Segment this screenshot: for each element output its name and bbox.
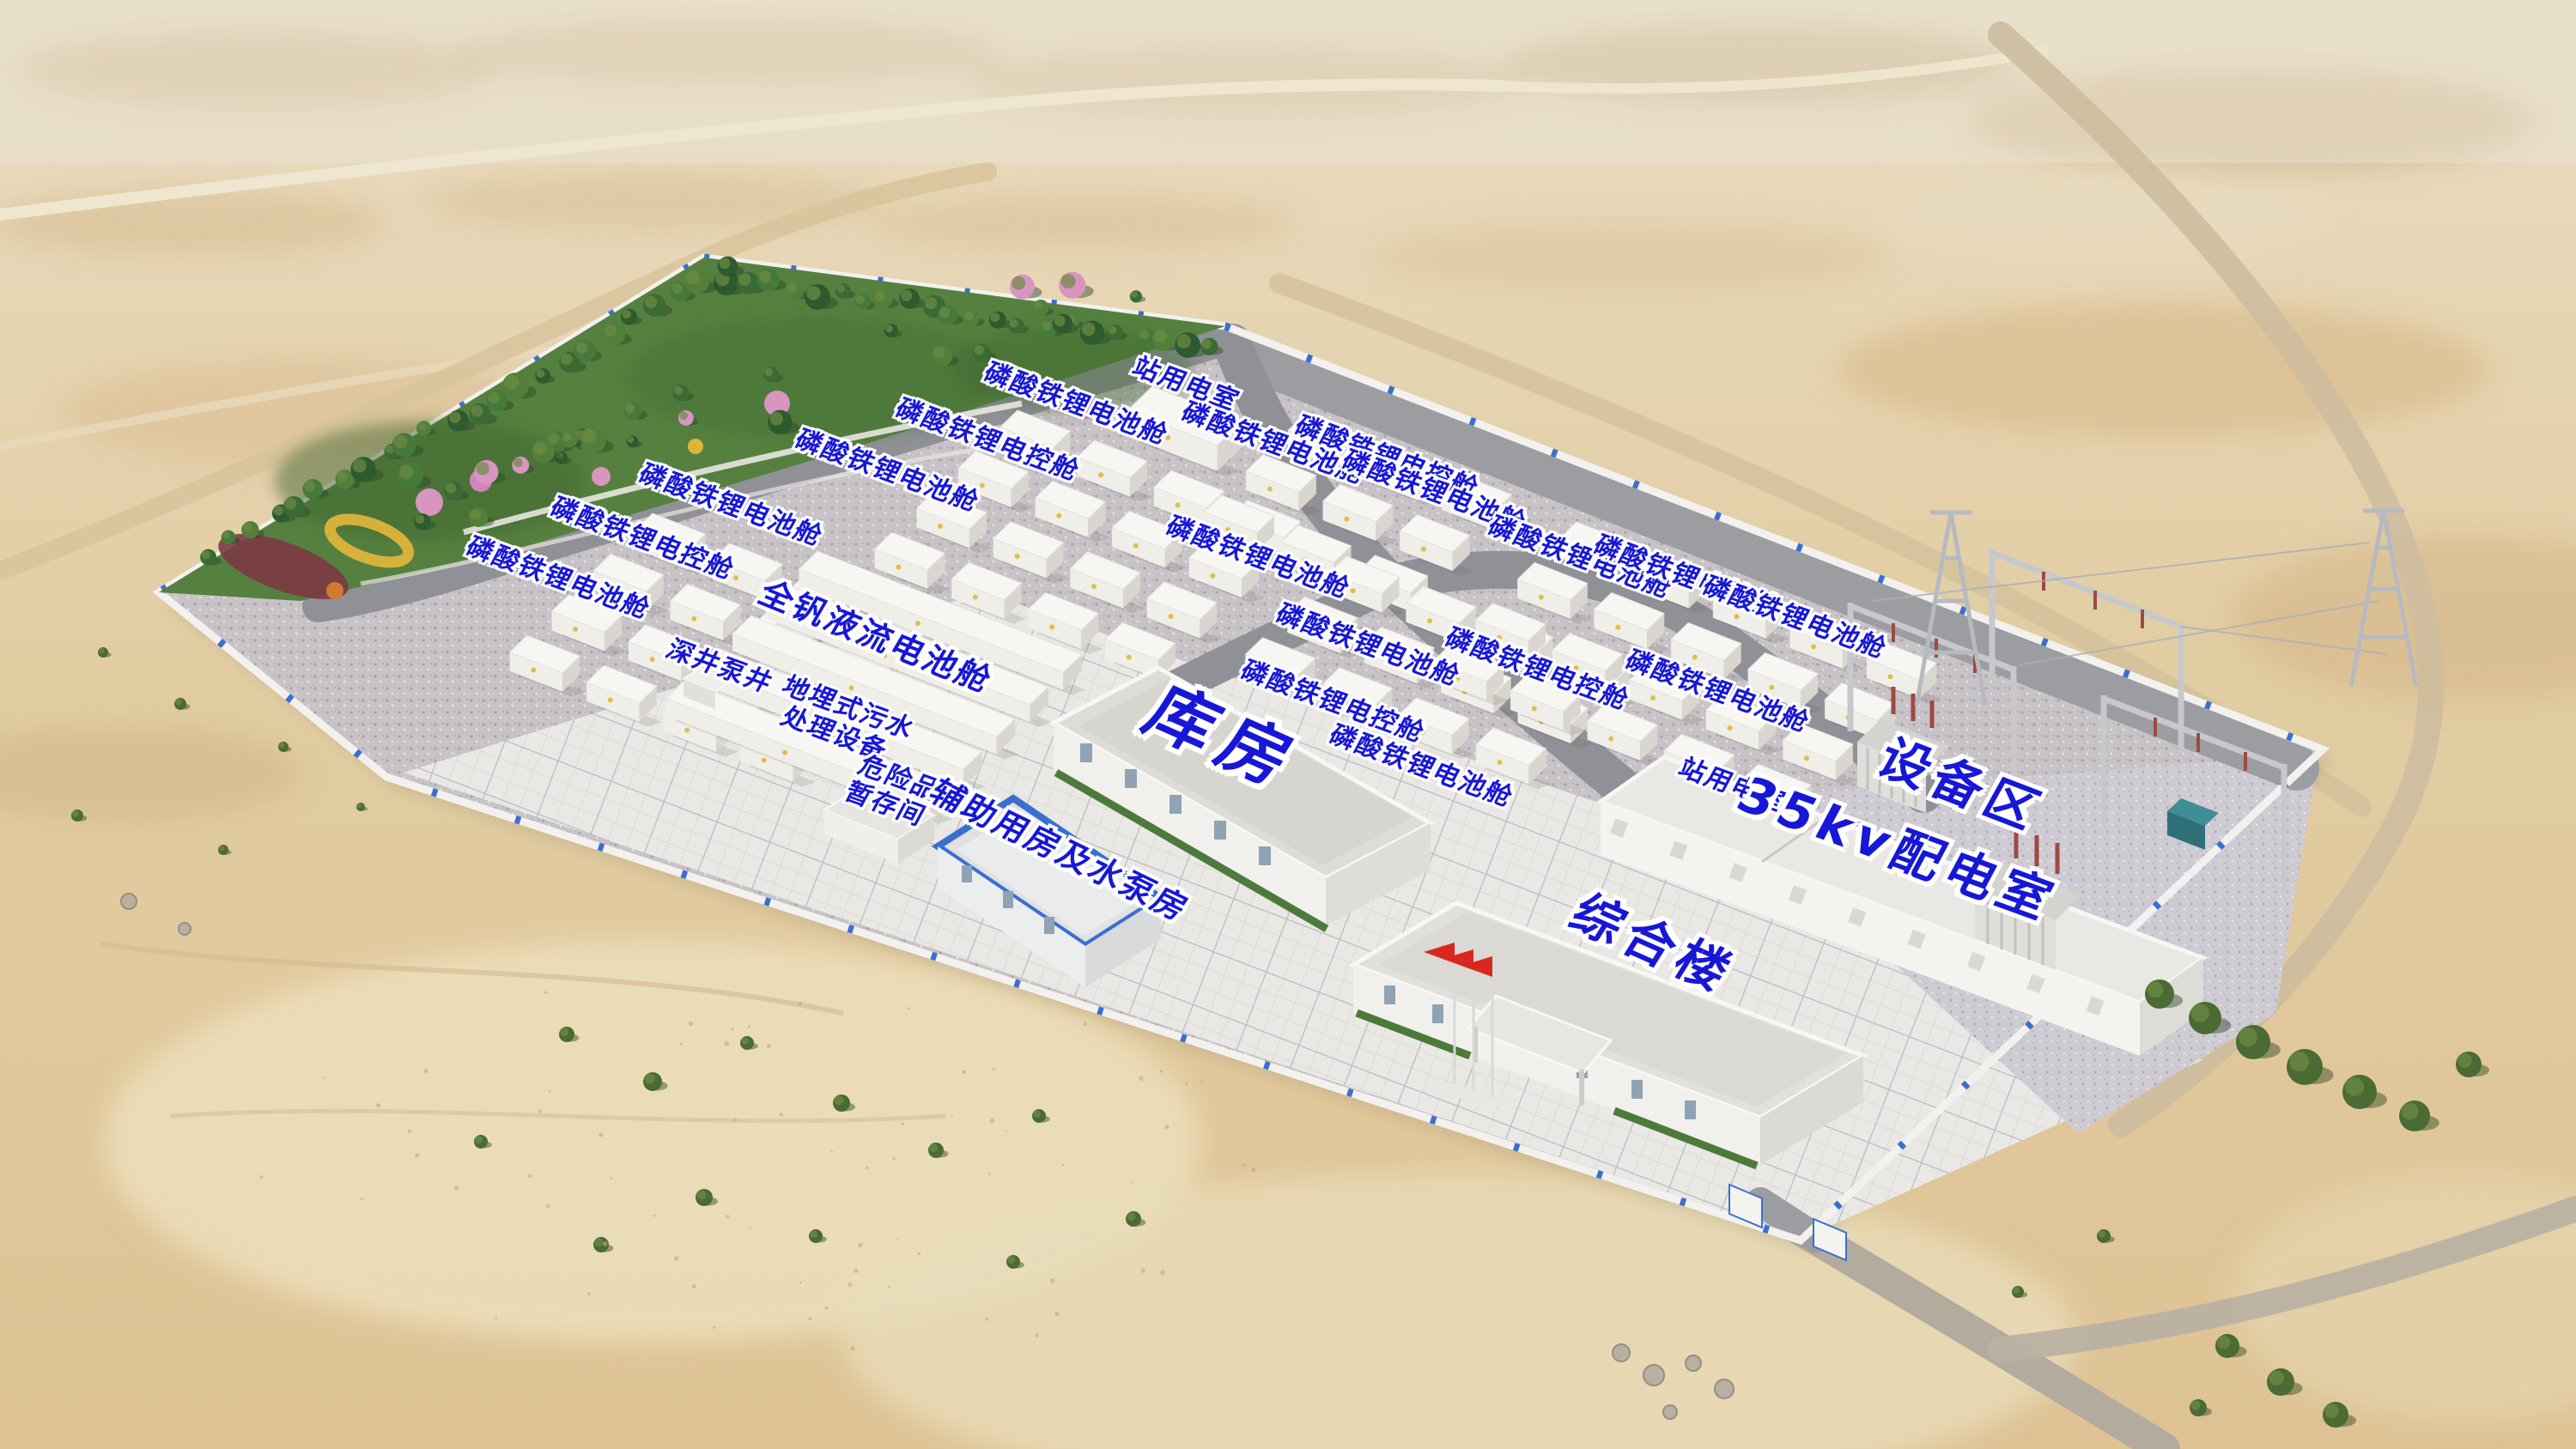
scene-canvas — [0, 0, 2576, 1449]
aerial-site-rendering: 磷酸铁锂电池舱 站用电室 磷酸铁锂电控舱 磷酸铁锂电池舱 磷酸铁锂电池舱 磷酸铁… — [0, 0, 2576, 1449]
